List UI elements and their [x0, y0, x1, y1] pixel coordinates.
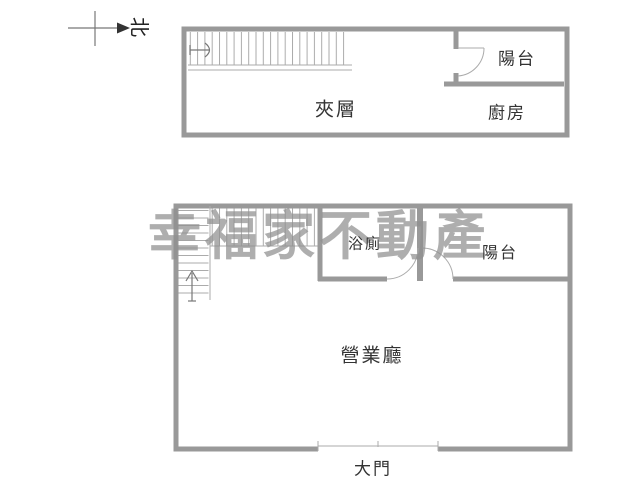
agency-watermark: 幸福家不動產: [148, 209, 490, 265]
room-label-bathroom: 浴廁: [348, 233, 382, 254]
room-label-hall: 營業廳: [340, 341, 403, 368]
upper-balcony-door: [458, 48, 484, 76]
main-door-symbol: [318, 441, 438, 451]
room-label-mezzanine: 夾層: [315, 95, 357, 122]
floor-plan-canvas: 幸福家不動產 北 夾層 陽台 廚房 浴廁 陽台 營業廳 大門: [0, 0, 640, 480]
north-label: 北: [127, 17, 156, 37]
room-label-lower-balcony: 陽台: [482, 239, 518, 263]
room-label-kitchen: 廚房: [488, 99, 526, 124]
upper-balcony-door-arc: [458, 48, 484, 76]
upper-stairs: [188, 32, 352, 70]
room-label-upper-balcony: 陽台: [498, 45, 536, 70]
north-arrow-icon: [68, 11, 130, 46]
room-label-main-door: 大門: [354, 455, 392, 480]
